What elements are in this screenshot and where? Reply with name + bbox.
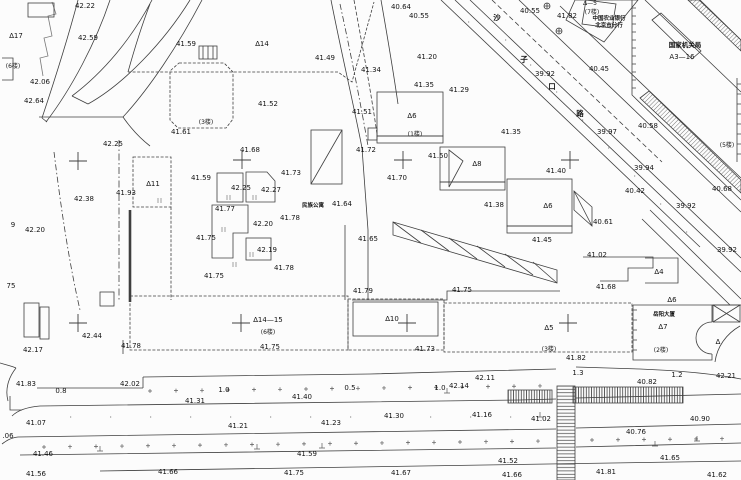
map-label: (2楼) [654,346,669,354]
map-label: 41.40 [546,167,566,175]
map-label: 41.67 [391,469,411,477]
map-label: ∆5 [543,324,553,332]
map-label: (6楼) [261,328,276,336]
map-label: 41.73 [415,345,435,353]
map-label: 39.92 [535,70,555,78]
map-label: 41.52 [498,457,518,465]
map-label: 42.25 [231,184,251,192]
map-label: (6楼) [6,62,21,70]
map-label: 41.65 [660,454,680,462]
map-label: 41.77 [215,205,235,213]
map-label: 40.58 [638,122,658,130]
map-label: 42.06 [30,78,51,86]
yueyang-building [633,305,741,362]
grid-cross-icon [69,152,87,170]
map-label: 沙 [493,13,501,22]
map-label: ∆6 [666,296,677,304]
map-label: 40.55 [409,12,429,20]
map-label: 41.07 [26,419,46,427]
map-label: 42.22 [75,2,95,10]
map-label: 40.61 [593,218,613,226]
map-label: 41.59 [191,174,211,182]
map-label: 41.23 [321,419,341,427]
map-label: 1.3 [572,369,583,377]
map-label: 39.97 [597,128,617,136]
map-label: 41.66 [502,471,523,479]
map-label: (3楼) [199,118,214,126]
road-island-top-left [2,0,202,146]
map-label: 路 [576,108,584,118]
map-label: 42.64 [24,97,45,105]
map-label: 42.19 [257,246,277,254]
map-label: 41.75 [452,286,472,294]
map-label: 41.20 [417,53,437,61]
building-5-outline [444,303,632,352]
map-label: A3—16 [669,53,695,61]
map-label: ∆10 [384,315,399,323]
map-label: 41.02 [587,251,607,259]
survey-map-canvas: 42.22∆1742.5941.59∆1441.4940.6440.55(6楼)… [0,0,741,480]
map-label: 41.21 [228,422,248,430]
map-label: 41.81 [596,468,616,476]
map-label: 42.14 [449,382,470,390]
map-label: 42.59 [78,34,98,42]
map-label: 41.68 [240,146,260,154]
map-label: 41.93 [116,189,136,197]
map-label: 41.70 [387,174,407,182]
corner-box [28,3,54,17]
map-label: ∆ [715,338,721,346]
map-label: 39.94 [634,164,655,172]
map-label: 国家机关局 [669,40,702,49]
map-label: 42.44 [82,332,103,340]
map-label: 41.30 [384,412,404,420]
map-label: 41.79 [353,287,373,295]
grid-cross-icon [394,151,412,169]
map-label: 41.75 [204,272,224,280]
map-label: 41.46 [33,450,54,458]
map-label: 41.66 [158,468,179,476]
map-label: 40.90 [690,415,710,423]
map-label: 41.16 [472,411,493,419]
mid-right-buildings [352,92,678,300]
map-label: 42.20 [25,226,45,234]
map-label: ∆7 [657,323,667,331]
map-label: 41.56 [26,470,47,478]
map-label: 41.62 [707,471,727,479]
map-label: 75 [7,282,16,290]
map-label: 9 [11,221,15,229]
map-label: 41.40 [292,393,312,401]
map-label: 41.59 [176,40,196,48]
map-label: 41.61 [171,128,191,136]
map-label: 41.75 [284,469,304,477]
map-label: 42.25 [103,140,123,148]
map-label: 1.0 [218,386,229,394]
map-label: .06 [2,432,14,440]
map-label: 41.02 [531,415,551,423]
map-label: 41.50 [428,152,448,160]
map-label: (7楼) [585,8,600,16]
map-label: 40.55 [520,7,540,15]
retaining-wall [393,222,557,283]
map-label: 40.64 [391,3,412,11]
map-label: 41.35 [414,81,434,89]
grid-cross-layer [69,151,579,332]
map-label: 41.82 [566,354,586,362]
map-label: 岳阳大厦 [653,310,676,318]
map-label: 42.38 [74,195,94,203]
map-label: (1楼) [408,130,423,138]
map-label: 41.38 [484,201,504,209]
map-label: 41.75 [260,343,280,351]
map-label: 40.76 [626,428,647,436]
map-label: 42.17 [23,346,43,354]
map-label: 41.34 [361,66,382,74]
map-label: 41.51 [352,108,372,116]
median-bar [508,390,552,403]
map-label: 41.65 [358,235,378,243]
map-label: 41.29 [449,86,469,94]
map-label: 41.45 [532,236,552,244]
map-label: (3楼) [542,345,557,353]
map-label: ∆6 [406,112,417,120]
grid-cross-icon [398,314,416,332]
map-label: ∆8 [471,160,481,168]
map-label: 39.92 [676,202,696,210]
map-label: 41.49 [315,54,335,62]
map-label: 41.78 [121,342,141,350]
stairs-icon [199,46,217,59]
map-label: 41.31 [185,397,205,405]
crosswalk [557,386,575,480]
map-label: (5楼) [720,141,735,149]
map-label: 41.59 [297,450,317,458]
map-label: 39.92 [717,246,737,254]
map-label: ∆17 [8,32,23,40]
map-label: 0.8 [55,387,66,395]
grid-cross-icon [232,314,250,332]
map-label: 41.73 [281,169,301,177]
building-6b-outline [507,179,572,226]
median-bar [573,387,683,403]
map-label: 民族公寓 [302,201,325,209]
map-label: 1.0 [434,384,445,392]
map-label: 0.5 [344,384,355,392]
map-label: 42.21 [716,372,736,380]
misc-left-structures [10,152,114,410]
map-label: 42.20 [253,220,273,228]
map-label: 41.35 [501,128,521,136]
map-label: ∆—5 [582,0,597,7]
grid-cross-icon [559,314,577,332]
map-label: 口 [548,82,556,91]
map-label: 40.82 [637,378,657,386]
map-label: 41.68 [596,283,616,291]
map-label: 40.68 [712,185,732,193]
map-label: 42.27 [261,186,281,194]
map-label: 40.45 [589,65,609,73]
map-label: 41.64 [332,200,353,208]
map-label: 42.02 [120,380,140,388]
map-label: 中国农业银行 [592,14,626,22]
map-label: ∆14—15 [252,316,283,324]
crosswalk-and-medians [508,386,683,480]
map-label: 41.52 [258,100,278,108]
map-label: 42.11 [475,374,495,382]
map-label: ∆4 [653,268,664,276]
map-label: 41.72 [356,146,376,154]
map-label: 41.78 [274,264,294,272]
map-label: 40.42 [625,187,645,195]
map-label: 41.82 [557,12,577,20]
map-label: 1.2 [671,371,682,379]
map-label: ∆14 [254,40,269,48]
map-label: 41.78 [280,214,300,222]
map-label: 北京市分行 [595,21,623,29]
map-label: 41.83 [16,380,36,388]
map-labels-layer: 42.22∆1742.5941.59∆1441.4940.6440.55(6楼)… [2,0,737,479]
site-plan-svg: 42.22∆1742.5941.59∆1441.4940.6440.55(6楼)… [0,0,741,480]
map-label: 41.75 [196,234,216,242]
map-label: ∆6 [542,202,553,210]
map-label: ∆11 [145,180,160,188]
grid-cross-icon [69,314,87,332]
map-label: 子 [520,55,528,64]
